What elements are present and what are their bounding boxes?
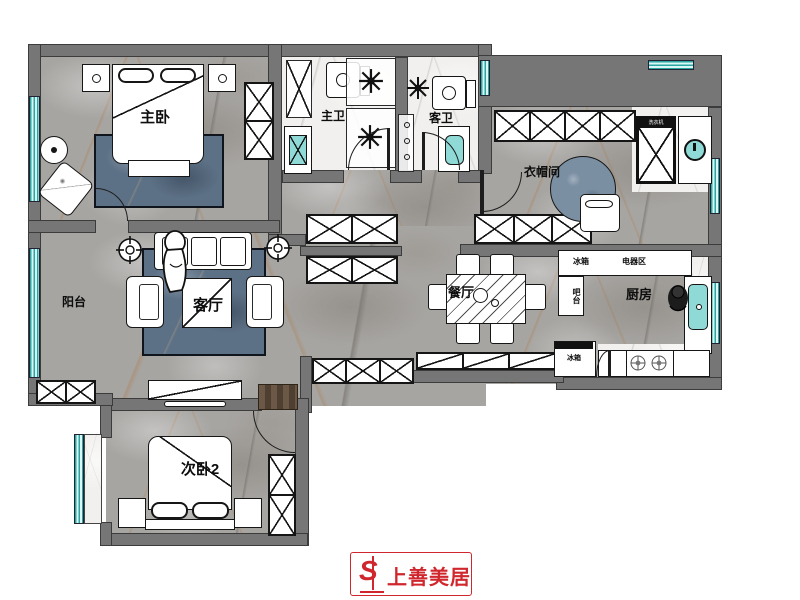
door-leaf xyxy=(480,170,484,214)
bed-bench xyxy=(128,160,190,177)
room-label-master-bath: 主卫 xyxy=(306,110,360,123)
window xyxy=(29,248,40,378)
pillow xyxy=(192,502,229,519)
dining-chair xyxy=(490,254,514,276)
bar-counter-label: 吧台 xyxy=(562,280,580,312)
room-label-guest-bath: 客卫 xyxy=(414,112,468,125)
door-leaf xyxy=(422,132,425,170)
washer-label: 洗衣机 xyxy=(639,119,673,128)
toilet xyxy=(432,76,466,110)
dryer xyxy=(678,116,712,184)
nightstand xyxy=(82,64,110,92)
room-label-living: 客厅 xyxy=(178,298,238,315)
room-label-bedroom2: 次卧2 xyxy=(158,462,242,479)
nightstand xyxy=(208,64,236,92)
fridge: 冰箱 xyxy=(554,341,596,377)
sideboard xyxy=(416,352,556,370)
logo-mark: S xyxy=(359,555,378,587)
tv-cabinet xyxy=(148,380,242,400)
room-label-balcony: 阳台 xyxy=(46,296,102,309)
window xyxy=(480,60,490,96)
round-side-table xyxy=(40,136,68,164)
hall-storage-cabinet xyxy=(306,214,398,244)
room-label-kitchen: 厨房 xyxy=(608,288,670,302)
cloakroom-wardrobe xyxy=(494,110,636,142)
wall xyxy=(295,398,309,546)
logo: S 上善美居 xyxy=(350,552,472,596)
low-cabinet xyxy=(312,358,414,384)
nightstand xyxy=(118,498,146,528)
armchair xyxy=(246,276,284,328)
wall xyxy=(300,246,402,256)
ceiling-light-icon xyxy=(116,236,144,264)
fridge-area-label: 冰箱 xyxy=(566,258,596,267)
wall xyxy=(28,220,96,233)
pillow xyxy=(160,68,196,83)
person-figure xyxy=(158,230,192,296)
wall xyxy=(412,370,564,383)
logo-subtext-line xyxy=(360,591,384,593)
wall xyxy=(100,522,112,546)
hall-storage-cabinet xyxy=(306,256,398,284)
balcony-cabinet xyxy=(36,380,96,404)
dressing-stool xyxy=(580,194,620,232)
door-leaf xyxy=(608,350,611,377)
wall xyxy=(28,44,482,57)
room-label-master-bedroom: 主卧 xyxy=(120,110,190,127)
logo-mark-stroke xyxy=(372,556,374,590)
appliance-area-label: 电器区 xyxy=(612,258,656,267)
dining-chair xyxy=(524,284,546,310)
headboard xyxy=(145,519,235,530)
kitchen-sink xyxy=(688,284,708,330)
dining-chair xyxy=(456,322,480,344)
pillow xyxy=(118,68,154,83)
wall xyxy=(556,377,722,390)
brand-name: 上善美居 xyxy=(387,561,471,590)
door-leaf xyxy=(387,128,390,170)
fridge-label: 冰箱 xyxy=(560,355,588,363)
exhaust-fan-icon xyxy=(358,68,384,94)
ceiling-light-icon xyxy=(264,234,292,262)
room-label-dining: 餐厅 xyxy=(438,286,484,300)
dining-chair xyxy=(456,254,480,276)
bay-window xyxy=(74,434,84,524)
pillow xyxy=(151,502,188,519)
window xyxy=(648,60,694,70)
window xyxy=(29,96,40,202)
wardrobe xyxy=(244,82,274,160)
tv-soundbar xyxy=(164,401,226,407)
floor-plan: 主卧 主卫 客卫 衣帽间 洗衣机 阳台 xyxy=(0,0,800,600)
bay-window-sill xyxy=(84,434,102,524)
gas-stove xyxy=(626,350,674,377)
toilet-tank xyxy=(466,80,476,108)
bathroom-sink xyxy=(284,126,312,174)
washing-machine: 洗衣机 xyxy=(636,116,676,184)
entry-mat xyxy=(258,384,298,410)
exhaust-fan-icon xyxy=(406,76,430,100)
dining-chair xyxy=(490,322,514,344)
shelf-niche xyxy=(398,114,414,172)
nightstand xyxy=(234,498,262,528)
wardrobe xyxy=(268,454,296,536)
